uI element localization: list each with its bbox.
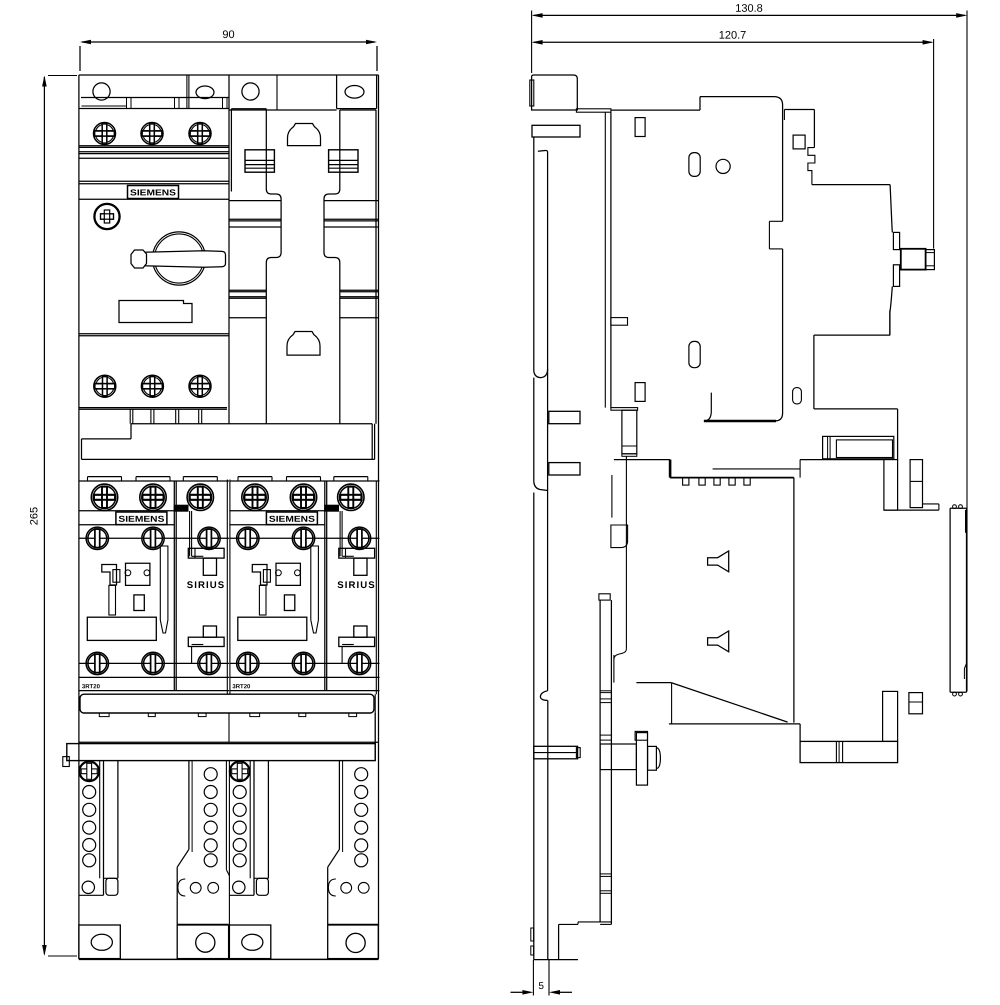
svg-text:265: 265 bbox=[29, 507, 41, 525]
svg-text:90: 90 bbox=[222, 29, 234, 41]
svg-text:SIEMENS: SIEMENS bbox=[130, 187, 176, 197]
svg-text:120.7: 120.7 bbox=[719, 30, 747, 42]
svg-text:130.8: 130.8 bbox=[735, 3, 763, 15]
svg-text:5: 5 bbox=[538, 981, 544, 992]
